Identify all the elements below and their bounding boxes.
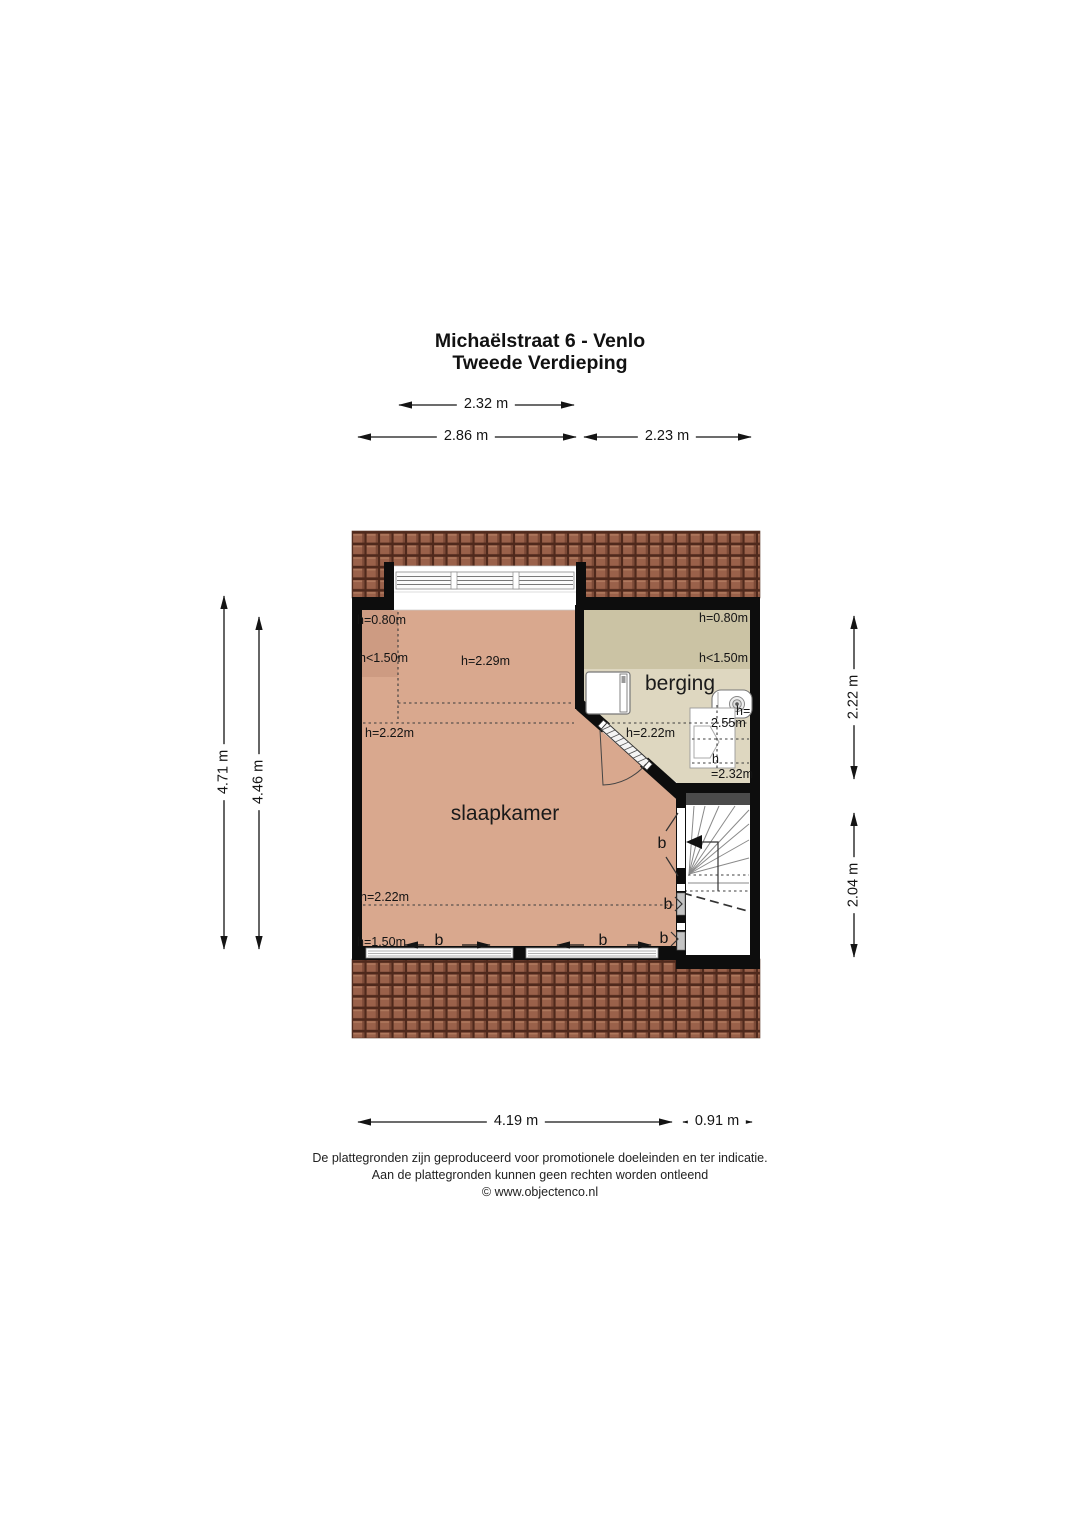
footer-disclaimer-1: De plattegronden zijn geproduceerd voor … (0, 1151, 1080, 1166)
stairs-partition (686, 793, 750, 805)
dim-right-lower: 2.04 m (846, 857, 863, 913)
bedroom-height-080: h=0.80m (357, 614, 406, 627)
stairwell-floor (684, 791, 750, 957)
window-mark-b-4: b (664, 897, 673, 913)
bedroom-height-229: h=2.29m (461, 655, 510, 668)
storage-height-232-prefix: h (712, 753, 719, 766)
bedroom-height-222-lower: h=2.22m (360, 891, 409, 904)
storage-height-080: h=0.80m (699, 612, 748, 625)
bedroom-height-150: h<1.50m (359, 652, 408, 665)
dim-bottom-stairs: 0.91 m (688, 1113, 746, 1130)
window-mark-b-2: b (599, 933, 608, 949)
bedroom-height-150-sill: h=1.50m (357, 936, 406, 949)
storage-height-232-value: =2.32m (711, 768, 753, 781)
floor-plan-page: Michaëlstraat 6 - Venlo Tweede Verdiepin… (0, 0, 1080, 1527)
bedroom-roof-windows (366, 948, 658, 958)
plan-title-address: Michaëlstraat 6 - Venlo (0, 330, 1080, 352)
washing-machine (586, 672, 630, 714)
plan-title-floor: Tweede Verdieping (0, 352, 1080, 374)
dim-top-right: 2.23 m (638, 428, 696, 445)
room-label-storage: berging (645, 673, 715, 695)
bedroom-height-222-upper: h=2.22m (365, 727, 414, 740)
floor-plan-drawing (0, 0, 1080, 1527)
window-mark-b-5: b (660, 931, 669, 947)
room-label-bedroom: slaapkamer (451, 803, 560, 825)
roof-bottom (352, 959, 760, 1038)
window-mark-b-3: b (658, 836, 667, 852)
dim-bottom-main: 4.19 m (487, 1113, 545, 1130)
dim-top-inner: 2.32 m (457, 396, 515, 413)
storage-height-255-value: 2.55m (711, 717, 746, 730)
storage-height-150: h<1.50m (699, 652, 748, 665)
dormer-window (392, 566, 578, 610)
dim-left-inner: 4.46 m (251, 754, 268, 810)
window-mark-b-1: b (435, 933, 444, 949)
footer-copyright: © www.objectenco.nl (0, 1185, 1080, 1200)
storage-height-222: h=2.22m (626, 727, 675, 740)
dim-right-upper: 2.22 m (846, 669, 863, 725)
footer-disclaimer-2: Aan de plattegronden kunnen geen rechten… (0, 1168, 1080, 1183)
dim-left-outer: 4.71 m (216, 744, 233, 800)
dim-top-left: 2.86 m (437, 428, 495, 445)
